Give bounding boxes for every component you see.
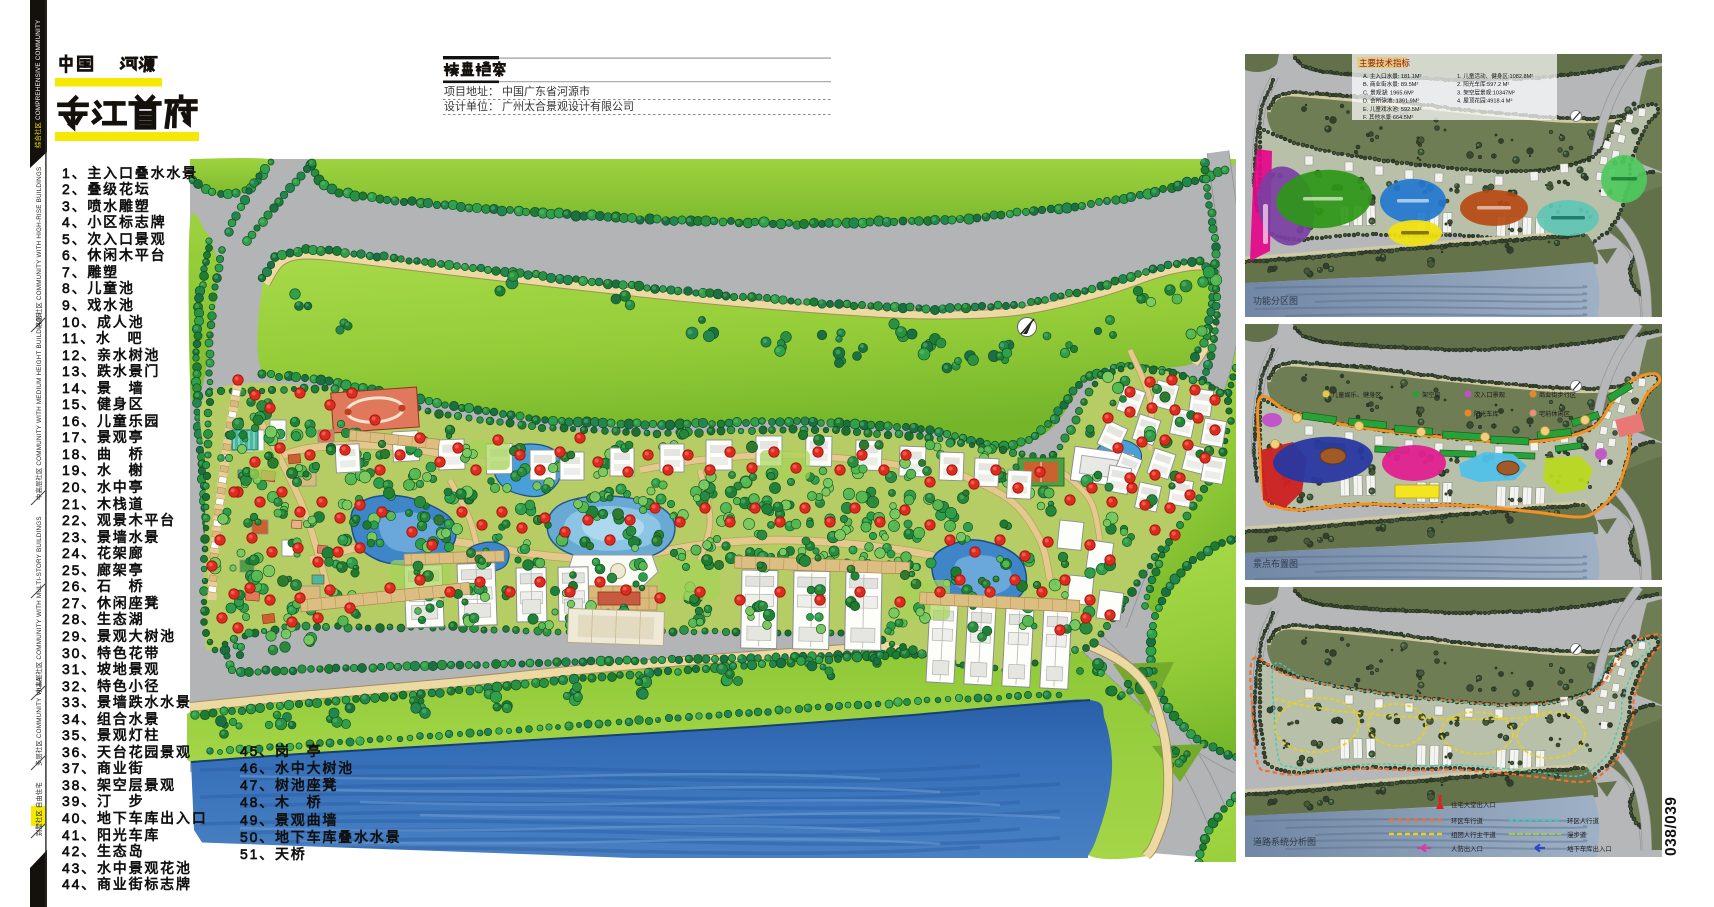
svg-text:F. 其他水景 664.5M²: F. 其他水景 664.5M² <box>1363 113 1413 121</box>
svg-text:2. 阳光车库:597.2 M²: 2. 阳光车库:597.2 M² <box>1457 80 1509 88</box>
svg-text:环区人行道: 环区人行道 <box>1567 816 1600 825</box>
svg-text:架空层: 架空层 <box>1422 391 1441 399</box>
svg-text:设计单位： 广州太合景观设计有限公司: 设计单位： 广州太合景观设计有限公司 <box>444 99 634 113</box>
svg-text:功能分区图: 功能分区图 <box>1253 295 1298 306</box>
svg-text:人防出入口: 人防出入口 <box>1451 844 1483 853</box>
svg-text:4. 屋顶花园:4918.4 M²: 4. 屋顶花园:4918.4 M² <box>1457 97 1512 105</box>
svg-text:漫步道: 漫步道 <box>1567 830 1587 839</box>
svg-text:儿童娱乐、健身区: 儿童娱乐、健身区 <box>1332 391 1382 399</box>
svg-text:B. 商业街水景: 89.5M²: B. 商业街水景: 89.5M² <box>1363 80 1418 88</box>
svg-text:C. 景观湖: 1965.6M²: C. 景观湖: 1965.6M² <box>1363 88 1414 96</box>
svg-text:3. 架空层景观:10347M²: 3. 架空层景观:10347M² <box>1457 88 1515 96</box>
svg-text:道路系统分析图: 道路系统分析图 <box>1253 836 1316 847</box>
svg-text:次入口景观: 次入口景观 <box>1474 391 1505 399</box>
svg-text:E. 儿童戏水池: 592.5M²: E. 儿童戏水池: 592.5M² <box>1363 105 1422 113</box>
svg-text:主要技术指标: 主要技术指标 <box>1359 58 1411 68</box>
svg-text:项目地址： 中国广东省河源市: 项目地址： 中国广东省河源市 <box>444 84 590 98</box>
svg-text:环区车行道: 环区车行道 <box>1451 816 1484 825</box>
svg-text:D. 会所泳池: 1391.9M²: D. 会所泳池: 1391.9M² <box>1363 97 1419 105</box>
svg-text:景点布置图: 景点布置图 <box>1253 558 1298 569</box>
svg-text:组团人行主干道: 组团人行主干道 <box>1451 830 1496 839</box>
svg-text:阳光车库: 阳光车库 <box>1474 410 1499 418</box>
svg-text:住宅大堂出入口: 住宅大堂出入口 <box>1451 800 1496 809</box>
svg-text:商业街步行区: 商业街步行区 <box>1539 391 1576 399</box>
svg-text:地下车库出入口: 地下车库出入口 <box>1567 844 1612 853</box>
svg-text:宅前休闲区: 宅前休闲区 <box>1539 410 1570 418</box>
svg-text:A. 主入口水景: 181.1M²: A. 主入口水景: 181.1M² <box>1363 72 1422 80</box>
svg-text:1. 儿童活动、健身区:1082.8M²: 1. 儿童活动、健身区:1082.8M² <box>1457 72 1533 80</box>
